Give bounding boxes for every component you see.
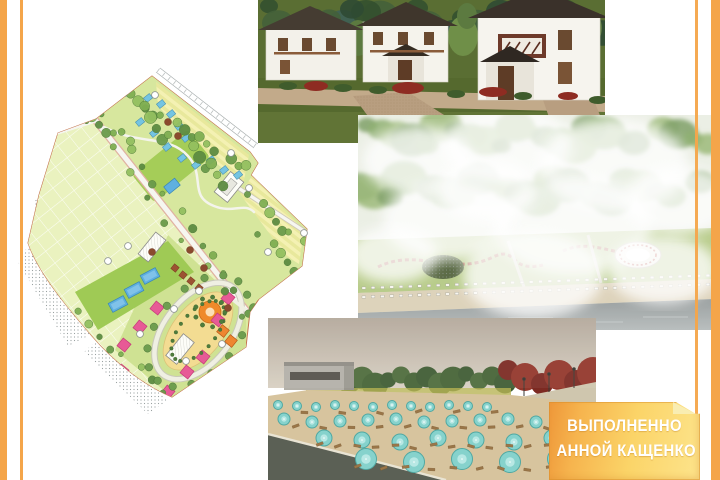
portfolio-sheet: { "badge": { "line1": "ВЫПОЛНЕННО", "lin…: [0, 0, 720, 480]
embankment-park-aerial-render: [358, 115, 713, 330]
cottage-house-right: [468, 0, 605, 100]
author-badge: ВЫПОЛНЕННО АННОЙ КАЩЕНКО: [549, 402, 700, 480]
right-accent-stripe-thin: [695, 0, 698, 480]
badge-line2: АННОЙ КАЩЕНКО: [557, 439, 693, 464]
plan-fountain-center: [206, 308, 215, 317]
left-accent-stripe-thin: [20, 0, 23, 480]
badge-line1: ВЫПОЛНЕННО: [557, 414, 693, 439]
right-accent-stripe-thick: [711, 0, 720, 480]
plan-building-orange-a: [90, 94, 106, 109]
left-accent-stripe-thick: [0, 0, 7, 480]
plan-building-orange-b: [61, 115, 73, 127]
beach-render: [268, 318, 596, 480]
badge-text: ВЫПОЛНЕННО АННОЙ КАЩЕНКО: [557, 414, 693, 464]
